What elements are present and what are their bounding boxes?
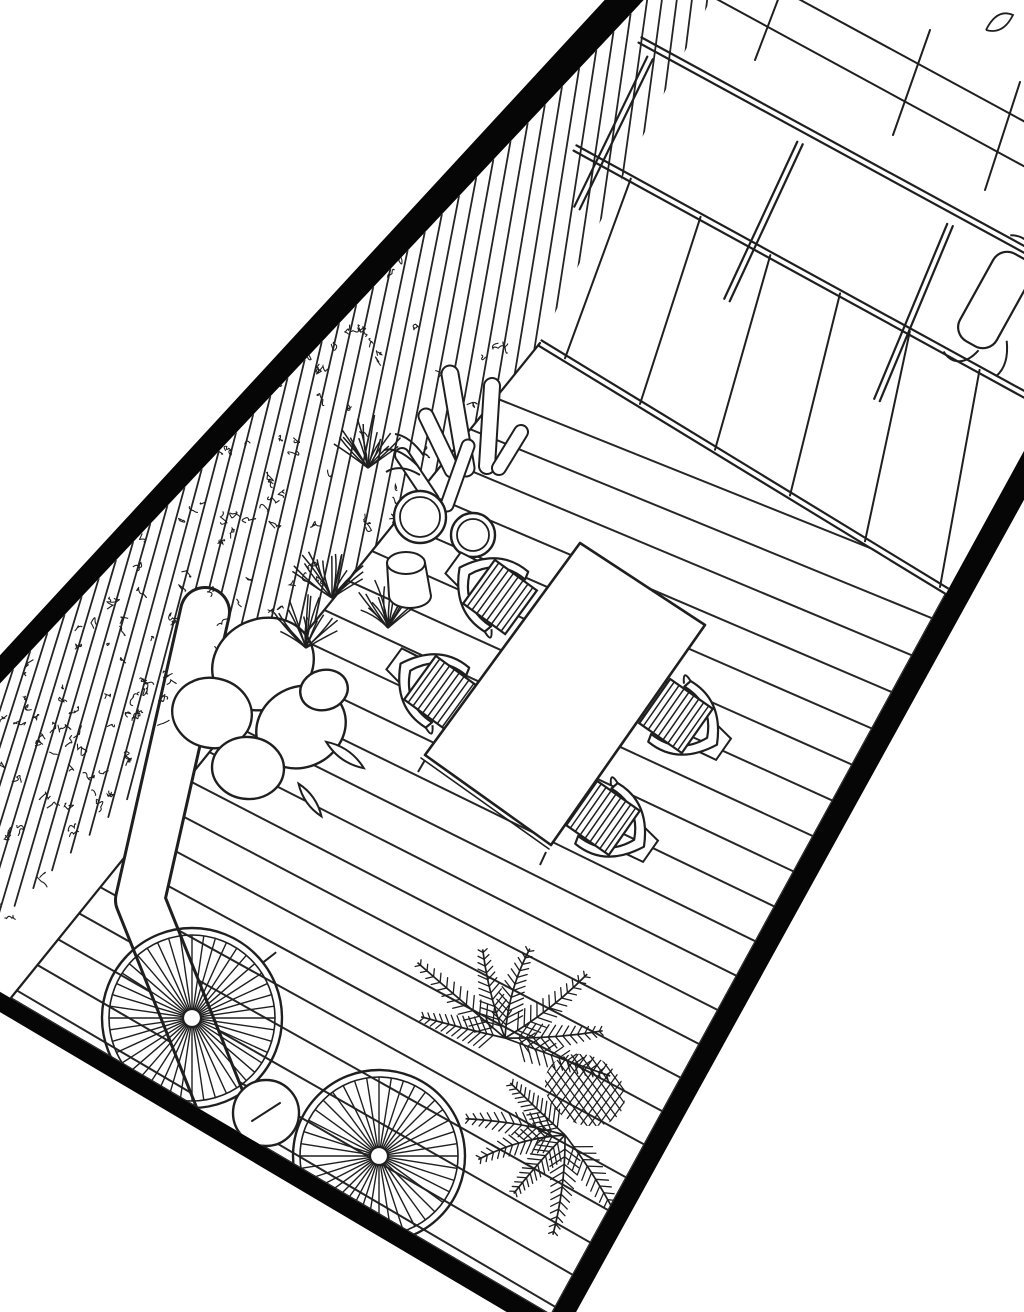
patio-line-drawing-screenshot [0, 0, 1024, 1312]
drawing-content [0, 0, 1024, 1312]
patio-line-drawing [0, 0, 1024, 1312]
